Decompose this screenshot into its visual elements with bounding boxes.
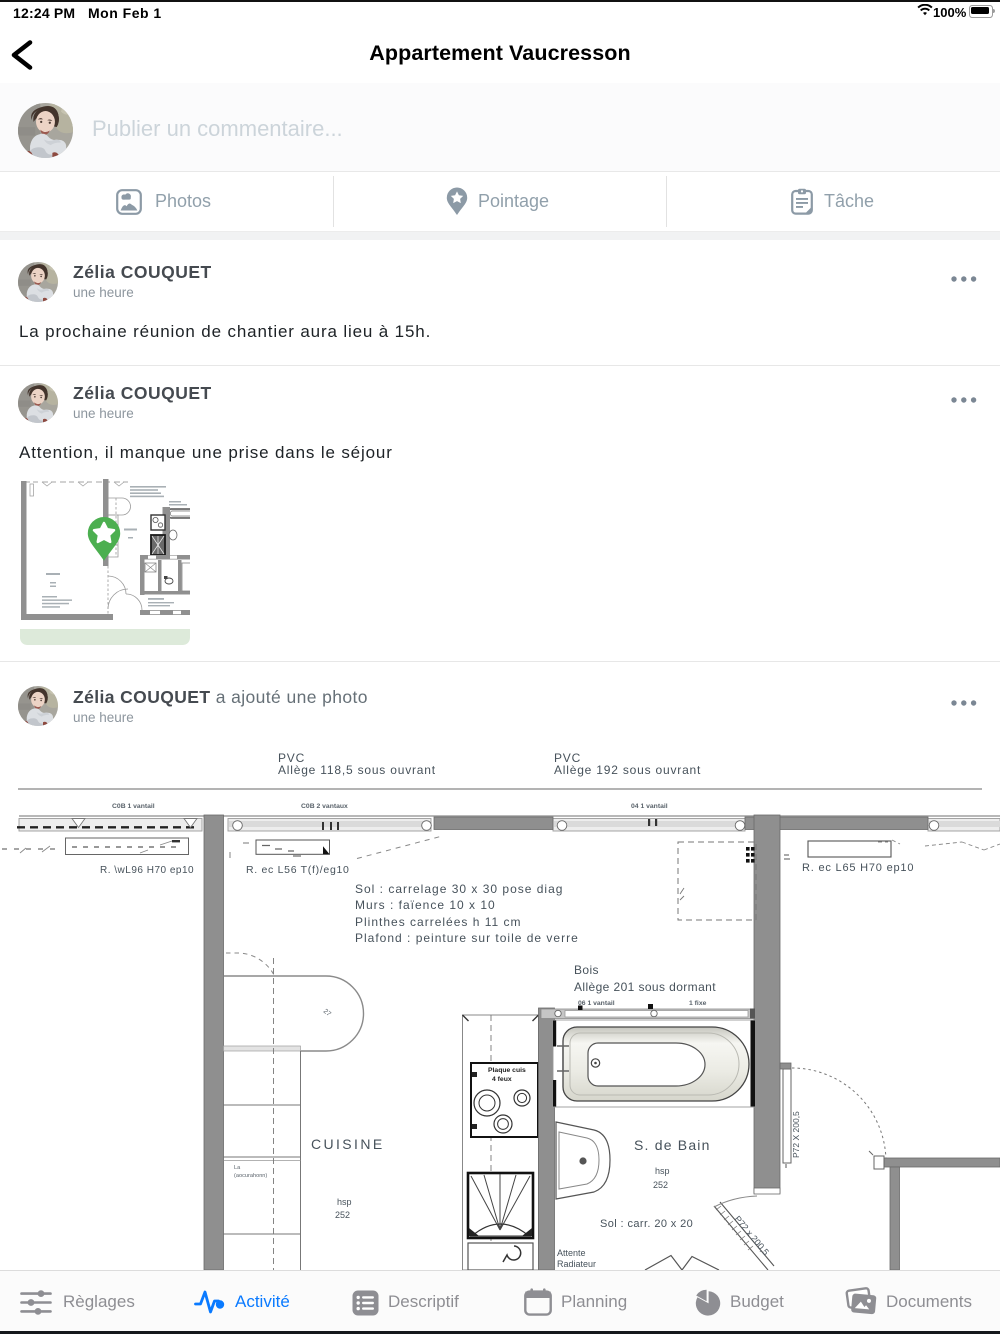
svg-text:06 1 vantail: 06 1 vantail [578, 1000, 615, 1007]
svg-text:hsp: hsp [337, 1197, 352, 1207]
svg-text:R. ec L56 T(f)/eg10: R. ec L56 T(f)/eg10 [246, 864, 350, 876]
svg-text:Plinthes carrelées h 11 cm: Plinthes carrelées h 11 cm [355, 915, 522, 929]
svg-text:Sol : carrelage 30 x 30 pose d: Sol : carrelage 30 x 30 pose diag [355, 882, 563, 896]
svg-text:252: 252 [335, 1210, 350, 1220]
svg-text:Attente: Attente [557, 1248, 586, 1258]
svg-text:CUISINE: CUISINE [311, 1136, 385, 1152]
svg-text:Bois: Bois [574, 963, 599, 977]
svg-text:04 1 vantail: 04 1 vantail [631, 803, 668, 810]
svg-text:Plaque cuis: Plaque cuis [488, 1067, 526, 1074]
svg-text:27: 27 [322, 1008, 332, 1018]
svg-text:C0B 2 vantaux: C0B 2 vantaux [301, 803, 348, 810]
svg-text:R. \wL96 H70 ep10: R. \wL96 H70 ep10 [100, 865, 194, 876]
svg-text:hsp: hsp [655, 1166, 670, 1176]
svg-text:252: 252 [653, 1180, 668, 1190]
svg-text:Sol : carr. 20 x 20: Sol : carr. 20 x 20 [600, 1218, 693, 1230]
svg-text:P72 X 200,5: P72 X 200,5 [791, 1111, 801, 1158]
svg-text:4 feux: 4 feux [492, 1076, 512, 1083]
svg-text:C0B 1 vantail: C0B 1 vantail [112, 803, 155, 810]
svg-text:(aocurahonn): (aocurahonn) [234, 1173, 267, 1179]
svg-text:Allège 118,5 sous ouvrant: Allège 118,5 sous ouvrant [278, 763, 436, 777]
svg-text:1 fixe: 1 fixe [689, 1000, 707, 1007]
svg-text:Allège 201 sous dormant: Allège 201 sous dormant [574, 980, 716, 994]
svg-text:Plafond : peinture sur toile d: Plafond : peinture sur toile de verre [355, 931, 579, 945]
svg-text:Allège 192 sous ouvrant: Allège 192 sous ouvrant [554, 763, 701, 777]
svg-text:S. de Bain: S. de Bain [634, 1137, 711, 1153]
svg-text:Murs : faïence 10 x 10: Murs : faïence 10 x 10 [355, 898, 496, 912]
svg-text:La: La [234, 1165, 241, 1171]
svg-text:Radiateur: Radiateur [557, 1259, 596, 1269]
svg-text:R. ec L65 H70 ep10: R. ec L65 H70 ep10 [802, 862, 914, 874]
